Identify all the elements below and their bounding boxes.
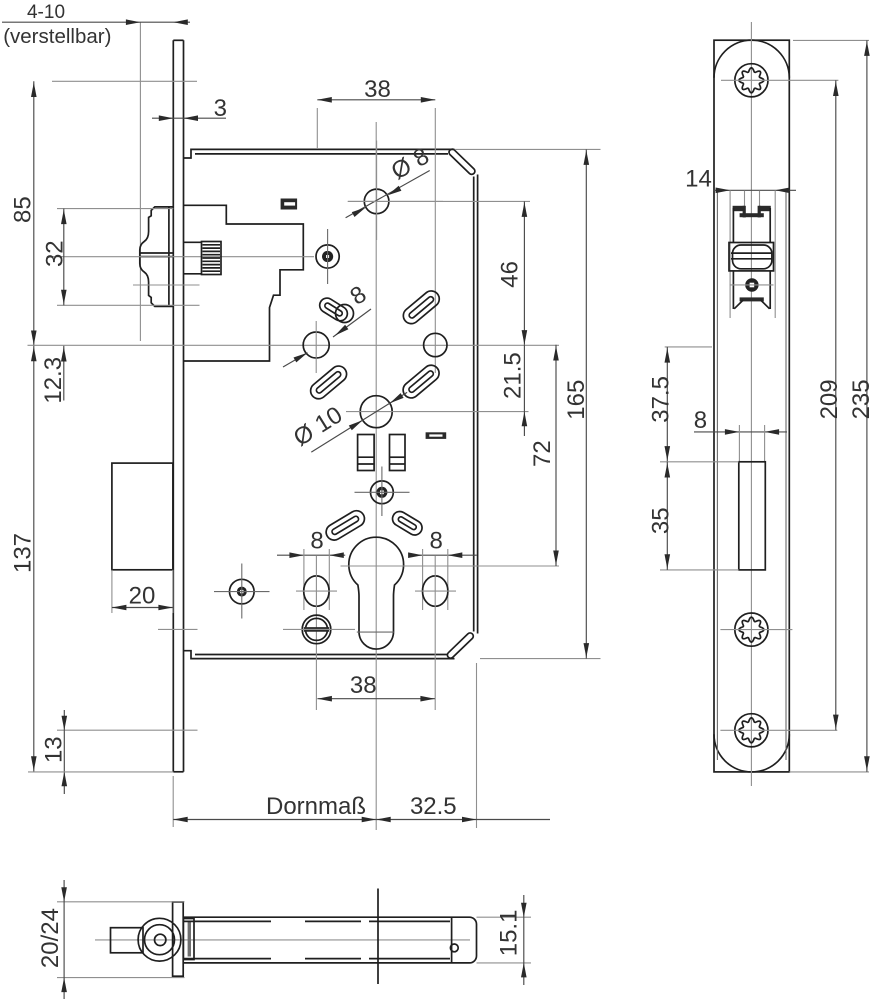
svg-text:20/24: 20/24 xyxy=(37,908,64,968)
svg-text:12.3: 12.3 xyxy=(40,357,67,404)
svg-text:209: 209 xyxy=(816,379,843,419)
svg-text:38: 38 xyxy=(364,76,391,103)
svg-text:32: 32 xyxy=(42,240,69,267)
svg-text:15.1: 15.1 xyxy=(496,910,523,957)
svg-text:3: 3 xyxy=(214,95,227,122)
svg-text:20: 20 xyxy=(129,583,156,610)
svg-text:35: 35 xyxy=(648,507,675,534)
svg-text:37.5: 37.5 xyxy=(648,376,675,423)
svg-text:8: 8 xyxy=(310,528,323,555)
svg-text:32.5: 32.5 xyxy=(410,793,457,820)
svg-text:(verstellbar): (verstellbar) xyxy=(3,25,111,48)
svg-text:13: 13 xyxy=(41,736,68,763)
svg-text:14: 14 xyxy=(685,166,712,193)
svg-text:72: 72 xyxy=(529,440,556,467)
svg-text:235: 235 xyxy=(848,379,874,419)
svg-text:21.5: 21.5 xyxy=(500,352,527,399)
svg-text:8: 8 xyxy=(694,407,707,434)
svg-text:8: 8 xyxy=(430,528,443,555)
svg-text:137: 137 xyxy=(10,533,37,573)
svg-text:4-10: 4-10 xyxy=(27,2,65,23)
svg-text:46: 46 xyxy=(497,261,524,288)
svg-text:38: 38 xyxy=(350,672,377,699)
svg-text:85: 85 xyxy=(9,196,36,223)
svg-text:Dornmaß: Dornmaß xyxy=(266,793,366,820)
svg-text:165: 165 xyxy=(563,380,590,420)
